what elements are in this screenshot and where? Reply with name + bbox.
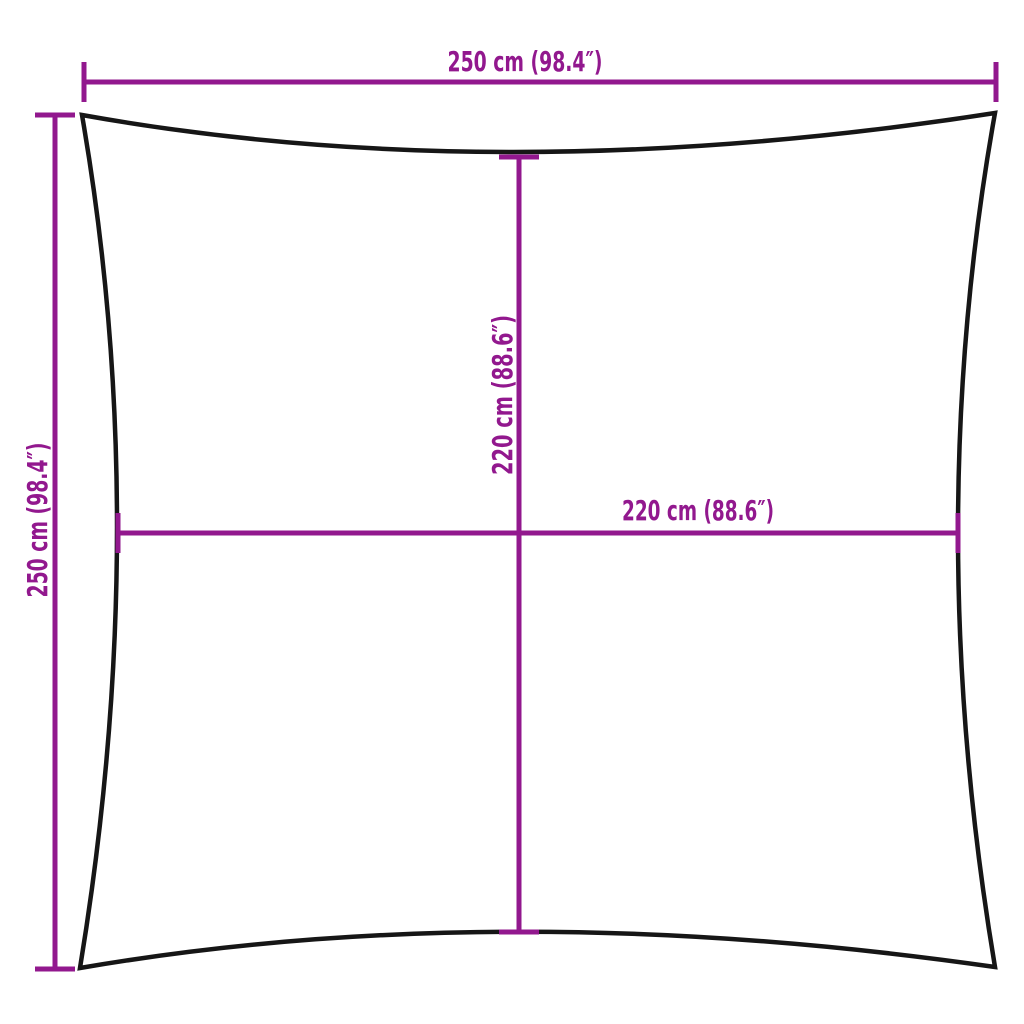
sail-outline [80, 113, 995, 968]
inner-horizontal-dimension-line [118, 513, 958, 553]
inner-horizontal-dimension-label: 220 cm (88.6″) [622, 494, 774, 527]
top-dimension-label: 250 cm (98.4″) [448, 45, 603, 78]
left-dimension-label: 250 cm (98.4″) [21, 443, 54, 598]
diagram-canvas: 250 cm (98.4″) 250 cm (98.4″) 220 cm (88… [0, 0, 1024, 1024]
inner-vertical-dimension-label: 220 cm (88.6″) [486, 315, 519, 475]
dimension-diagram: 250 cm (98.4″) 250 cm (98.4″) 220 cm (88… [0, 0, 1024, 1024]
inner-vertical-dimension-line [499, 157, 539, 932]
